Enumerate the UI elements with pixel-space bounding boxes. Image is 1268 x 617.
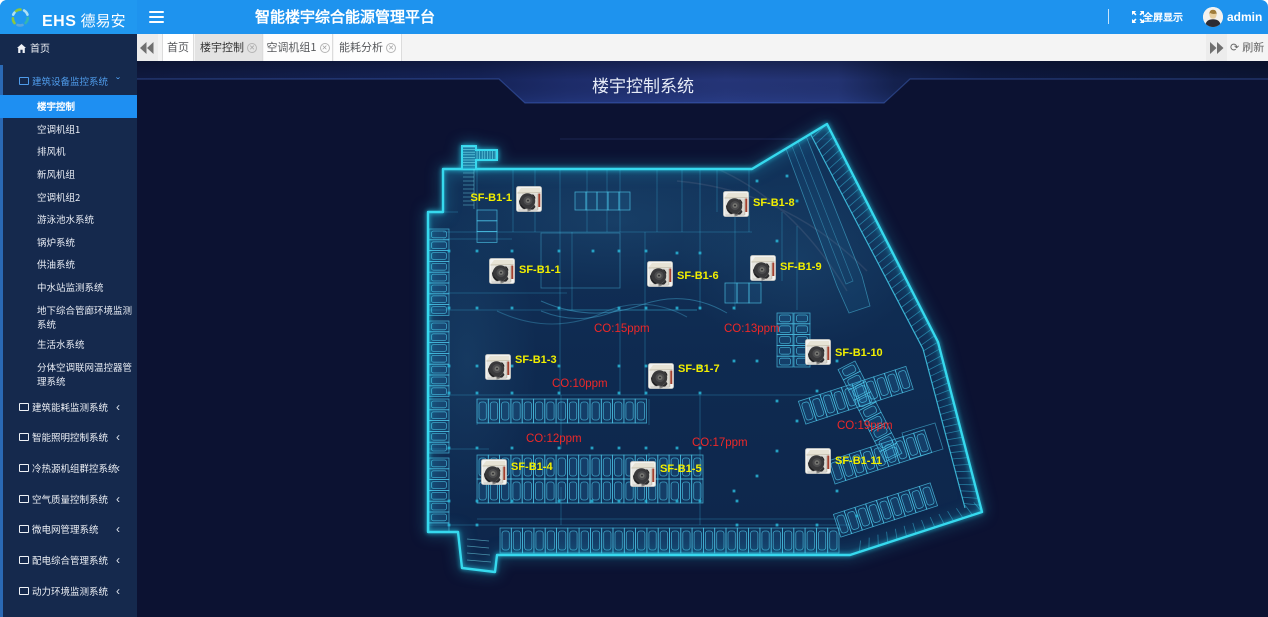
svg-text:CO:19ppm: CO:19ppm xyxy=(837,420,893,432)
svg-text:SF-B1-7: SF-B1-7 xyxy=(678,363,720,375)
svg-text:SF-B1-6: SF-B1-6 xyxy=(677,270,719,282)
svg-text:SF-B1-5: SF-B1-5 xyxy=(660,463,702,475)
svg-text:SF-B1-3: SF-B1-3 xyxy=(515,354,557,366)
svg-text:CO:10ppm: CO:10ppm xyxy=(552,378,608,390)
svg-text:SF-B1-1: SF-B1-1 xyxy=(470,192,512,204)
svg-text:CO:13ppm: CO:13ppm xyxy=(724,323,780,335)
svg-text:CO:15ppm: CO:15ppm xyxy=(594,323,650,335)
svg-text:SF-B1-8: SF-B1-8 xyxy=(753,197,795,209)
svg-text:CO:12ppm: CO:12ppm xyxy=(526,433,582,445)
svg-text:楼宇控制系统: 楼宇控制系统 xyxy=(592,72,694,97)
svg-text:CO:17ppm: CO:17ppm xyxy=(692,437,748,449)
svg-text:SF-B1-1: SF-B1-1 xyxy=(519,264,561,276)
svg-text:SF-B1-11: SF-B1-11 xyxy=(835,455,882,467)
svg-text:SF-B1-4: SF-B1-4 xyxy=(511,461,553,473)
svg-text:SF-B1-10: SF-B1-10 xyxy=(835,347,883,359)
svg-text:SF-B1-9: SF-B1-9 xyxy=(780,261,822,273)
